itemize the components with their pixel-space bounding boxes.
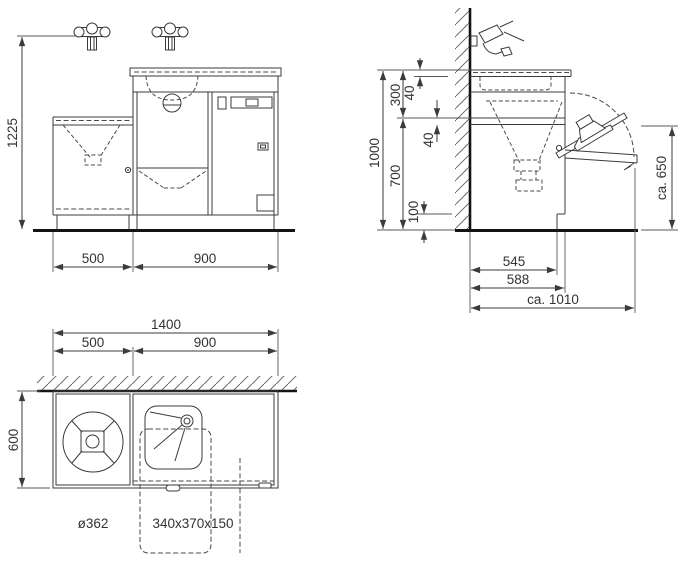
label-rect-basin: 340x370x150 [152, 516, 233, 531]
fold-out-board [556, 93, 637, 170]
label-round-basin: ø362 [78, 516, 109, 531]
board-horizontal [565, 150, 637, 170]
plan-view: 1400 500 900 600 ø362 340x370x150 [6, 317, 297, 553]
trough-projection [133, 429, 274, 553]
side-dimension-board-height: ca. 650 [641, 126, 678, 230]
front-view: 1225 500 900 [5, 23, 295, 272]
front-handle [166, 485, 180, 491]
dim-front-height: 1225 [5, 118, 20, 148]
technical-drawing-page: 1225 500 900 [0, 0, 680, 576]
dim-side-depth-overall: 588 [507, 272, 530, 287]
hidden-sink-bowl-outline [146, 76, 198, 100]
hidden-hopper-outline [139, 171, 206, 188]
door-knob [163, 94, 181, 112]
front-dimensions: 1225 500 900 [5, 36, 278, 272]
control-panel [218, 97, 274, 211]
hidden-basin-funnel [63, 125, 120, 165]
plan-dimensions: 1400 500 900 600 ø362 340x370x150 [6, 317, 278, 531]
drain-rect [181, 415, 193, 427]
faucet-side-icon [471, 21, 524, 56]
dim-side-shelf-thickness: 40 [421, 132, 436, 147]
side-dimensions-bottom: 545 588 ca. 1010 [470, 168, 635, 313]
side-dimensions-left: 1000 300 700 40 40 100 [367, 58, 470, 243]
hidden-chute-side [486, 101, 562, 191]
front-latch [259, 483, 271, 488]
dim-side-overall-height: 1000 [367, 138, 382, 168]
dim-side-board-height: ca. 650 [654, 156, 669, 200]
dim-side-counter-thickness: 40 [402, 85, 417, 100]
dim-plan-total-width: 1400 [151, 317, 181, 332]
faucet-front-right-icon [152, 23, 188, 50]
rect-sink [145, 406, 202, 469]
dim-side-plinth: 100 [406, 201, 421, 224]
round-basin [63, 412, 123, 472]
hidden-sink-bowl-side [480, 77, 551, 90]
dim-side-depth-extended: ca. 1010 [527, 292, 579, 307]
service-hatch [257, 195, 274, 211]
sink-unit-dimension-drawing: 1225 500 900 [0, 0, 680, 576]
front-right-unit [130, 68, 281, 230]
dim-plan-right-width: 900 [194, 335, 217, 350]
side-cabinet [470, 70, 571, 230]
dim-plan-left-width: 500 [82, 335, 105, 350]
dim-front-width-left: 500 [82, 251, 105, 266]
dim-plan-depth: 600 [6, 429, 21, 452]
dim-front-width-right: 900 [194, 251, 217, 266]
dim-side-depth-body: 545 [503, 254, 526, 269]
faucet-front-left-icon [74, 23, 110, 50]
drain-round [86, 435, 99, 448]
dim-side-lower: 700 [388, 165, 403, 188]
wall-hatching-plan [37, 376, 297, 391]
latch [258, 143, 268, 150]
front-left-cabinet [53, 117, 133, 230]
wall-hatching [455, 8, 470, 230]
dim-side-upper: 300 [388, 84, 403, 107]
side-view: 1000 300 700 40 40 100 ca. 650 [367, 8, 678, 313]
